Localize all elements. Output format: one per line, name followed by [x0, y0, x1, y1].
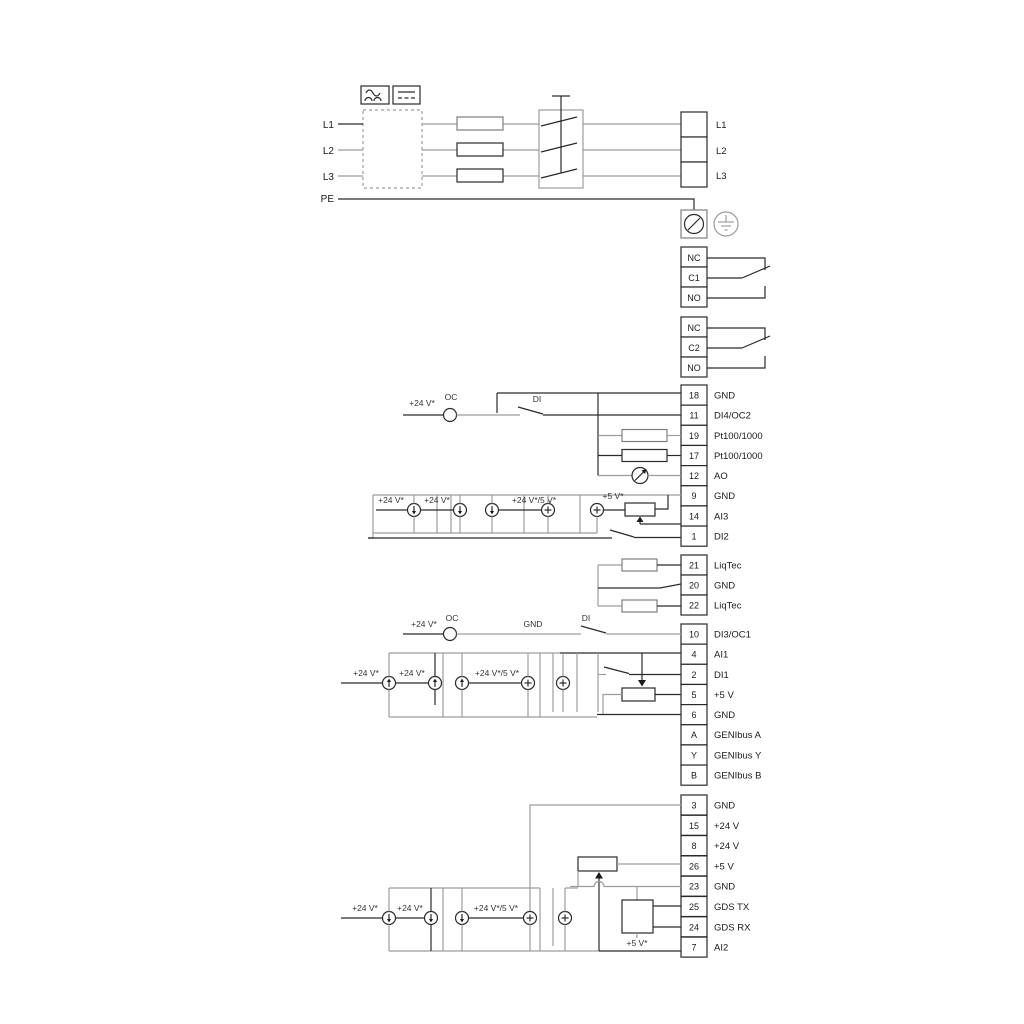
supply-label: +5 V*	[626, 938, 648, 948]
input-line-label: L3	[323, 172, 335, 183]
terminal-number: Y	[691, 750, 697, 760]
terminal-number: 15	[689, 821, 699, 831]
filter-dashed-box	[363, 110, 422, 188]
liqtec-wiring	[598, 559, 681, 612]
terminal-number: 1	[691, 532, 696, 542]
resistor-icon	[622, 600, 657, 612]
terminal-label: +24 V	[714, 821, 740, 832]
terminal-label: Pt100/1000	[714, 431, 763, 442]
resistor-icon	[622, 450, 667, 462]
switch-blade-icon	[610, 530, 634, 537]
input-line-label: L1	[323, 120, 335, 131]
terminal-number: 11	[689, 411, 698, 421]
terminal-label: GENIbus A	[714, 730, 762, 741]
voltage-sensor-icon	[469, 912, 537, 952]
di3-oc1-wiring: +24 V* OC GND DI	[403, 613, 681, 641]
changeover-contact-icon	[707, 328, 770, 368]
ai1-wiring: +24 V* +24 V* +24 V*/5 V*	[341, 653, 681, 717]
terminal-number: 19	[689, 431, 699, 441]
supply-label: +24 V*	[409, 398, 435, 408]
terminal-number: B	[691, 771, 697, 781]
supply-label: +24 V*/5 V*	[475, 668, 520, 678]
terminal-label: DI2	[714, 532, 729, 543]
wiring-diagram: L1 L2 L3 PE	[0, 0, 1024, 1024]
relay2-block: NC C2 NO	[681, 317, 770, 377]
supply-label: +24 V*	[424, 495, 450, 505]
output-line-label: L1	[716, 120, 727, 131]
earth-icon	[714, 212, 738, 236]
open-collector-label: OC	[446, 613, 459, 623]
analog-output-meter-icon	[632, 468, 648, 484]
terminal-number: 20	[689, 581, 699, 591]
potentiometer-icon	[603, 653, 681, 715]
ai3-wiring: +24 V* +24 V* +24 V*/5 V* +5 V*	[368, 491, 681, 538]
io2-terminal-block: 10 4 2 5 6 A Y B DI3/OC1 AI1 DI1 +5 V GN…	[681, 624, 762, 785]
supply-label: +24 V*	[378, 495, 404, 505]
relay1-block: NC C1 NO	[681, 247, 770, 307]
terminal-label: GENIbus B	[714, 771, 762, 782]
terminal-number: 14	[689, 511, 699, 521]
terminal-label: GND	[714, 882, 735, 893]
current-sensor-icon	[456, 653, 469, 717]
open-collector-label: OC	[445, 392, 458, 402]
current-sensor-icon	[396, 888, 438, 951]
gds-sensor-box: +5 V*	[622, 887, 681, 949]
terminal-label: DI4/OC2	[714, 411, 751, 422]
terminal-label: GDS TX	[714, 902, 750, 913]
digital-input-label: DI	[582, 613, 591, 623]
di1-switch	[598, 667, 681, 675]
relay-terminal: NO	[687, 293, 701, 303]
relay-terminal: C2	[688, 343, 700, 353]
terminal-number: 12	[689, 471, 699, 481]
pe-ground	[338, 199, 738, 238]
terminal-label: Pt100/1000	[714, 451, 763, 462]
terminal-label: AI2	[714, 943, 728, 954]
terminal-number: 22	[689, 601, 699, 611]
relay-terminal: C1	[688, 273, 700, 283]
resistor-icon	[622, 559, 657, 571]
supply-label: +24 V*	[352, 903, 378, 913]
terminal-number: 17	[689, 451, 699, 461]
resistor-icon	[622, 430, 667, 442]
terminal-number: 5	[691, 690, 696, 700]
mains-terminal-block: L1 L2 L3	[681, 112, 727, 187]
terminal-number: 18	[689, 391, 699, 401]
terminal-label: +5 V	[714, 861, 734, 872]
voltage-sensor-icon	[469, 653, 535, 717]
terminal-number: A	[691, 730, 697, 740]
fuse-icons	[457, 117, 503, 182]
terminal-label: GND	[714, 801, 735, 812]
dc-symbol-box	[393, 86, 420, 104]
digital-input-label: DI	[533, 394, 542, 404]
open-collector-icon	[444, 628, 457, 641]
gnd-crossover-wire	[570, 882, 681, 887]
switch-blade-icon	[518, 407, 543, 414]
switch-blade-icon	[581, 626, 606, 633]
terminal-label: GND	[714, 391, 735, 402]
terminal-label: LiqTec	[714, 601, 742, 612]
relay-terminal: NC	[688, 323, 701, 333]
voltage-sensor-icon	[557, 653, 570, 712]
terminal-cell	[681, 112, 707, 137]
phase-lines	[338, 124, 681, 176]
supply-label: +24 V*	[399, 668, 425, 678]
terminal-number: 2	[691, 670, 696, 680]
terminal-label: AI3	[714, 511, 728, 522]
terminal-number: 10	[689, 630, 699, 640]
terminal-number: 4	[691, 650, 696, 660]
terminal-number: 7	[691, 943, 696, 953]
input-line-label: L2	[323, 146, 335, 157]
relay-terminal: NC	[688, 253, 701, 263]
supply-label: +24 V*/5 V*	[474, 903, 519, 913]
relay-terminal: NO	[687, 363, 701, 373]
switch-blade-icon	[604, 667, 629, 674]
changeover-contact-icon	[707, 258, 770, 298]
terminal-number: 25	[689, 902, 699, 912]
supply-label: +5 V*	[602, 491, 624, 501]
voltage-sensor-icon	[559, 888, 572, 951]
current-sensor-icon	[341, 653, 396, 717]
terminal-cell	[681, 137, 707, 162]
terminal-number: 24	[689, 922, 699, 932]
terminal-label: LiqTec	[714, 561, 742, 572]
terminal-label: GDS RX	[714, 922, 751, 933]
terminal-label: AO	[714, 471, 728, 482]
ac-symbol-box	[361, 86, 389, 104]
supply-label: +24 V*	[411, 619, 437, 629]
terminal-number: 21	[689, 561, 699, 571]
terminal-number: 23	[689, 882, 699, 892]
liqtec-terminal-block: 21 20 22 LiqTec GND LiqTec	[598, 555, 742, 615]
terminal-label: AI1	[714, 650, 728, 661]
current-sensor-icon	[341, 888, 396, 951]
terminal-number: 6	[691, 710, 696, 720]
terminal-label: GND	[714, 581, 735, 592]
current-sensor-icon	[486, 495, 499, 533]
terminal-label: +24 V	[714, 841, 740, 852]
output-line-label: L2	[716, 146, 727, 157]
terminal-number: 26	[689, 861, 699, 871]
terminal-label: +5 V	[714, 690, 734, 701]
di4-oc2-wiring: +24 V* OC DI	[403, 392, 681, 484]
supply-label: +24 V*	[353, 668, 379, 678]
io1-terminal-block: 18 11 19 17 12 9 14 1 GND DI4/OC2 Pt100/…	[681, 385, 763, 546]
current-sensor-icon	[396, 653, 442, 705]
terminal-number: 9	[691, 491, 696, 501]
ground-label: GND	[524, 619, 543, 629]
terminal-label: DI1	[714, 670, 729, 681]
output-line-label: L3	[716, 171, 727, 182]
terminal-number: 3	[691, 801, 696, 811]
power-section: L1 L2 L3 PE	[321, 86, 738, 238]
supply-label: +24 V*	[397, 903, 423, 913]
io3-terminal-block: 3 15 8 26 23 25 24 7 GND +24 V +24 V +5 …	[681, 795, 751, 957]
terminal-cell	[681, 162, 707, 187]
open-collector-icon	[444, 409, 457, 422]
terminal-label: GND	[714, 491, 735, 502]
ai2-gds-wiring: +5 V* +24 V* +24 V* +24 V*/5 V*	[341, 805, 681, 951]
input-line-label: PE	[321, 194, 335, 205]
terminal-label: GND	[714, 710, 735, 721]
voltage-sensor-icon	[591, 504, 604, 534]
terminal-number: 8	[691, 841, 696, 851]
terminal-label: GENIbus Y	[714, 750, 762, 761]
main-switch-icon	[539, 96, 583, 188]
current-sensor-icon	[456, 888, 469, 951]
terminal-label: DI3/OC1	[714, 630, 751, 641]
